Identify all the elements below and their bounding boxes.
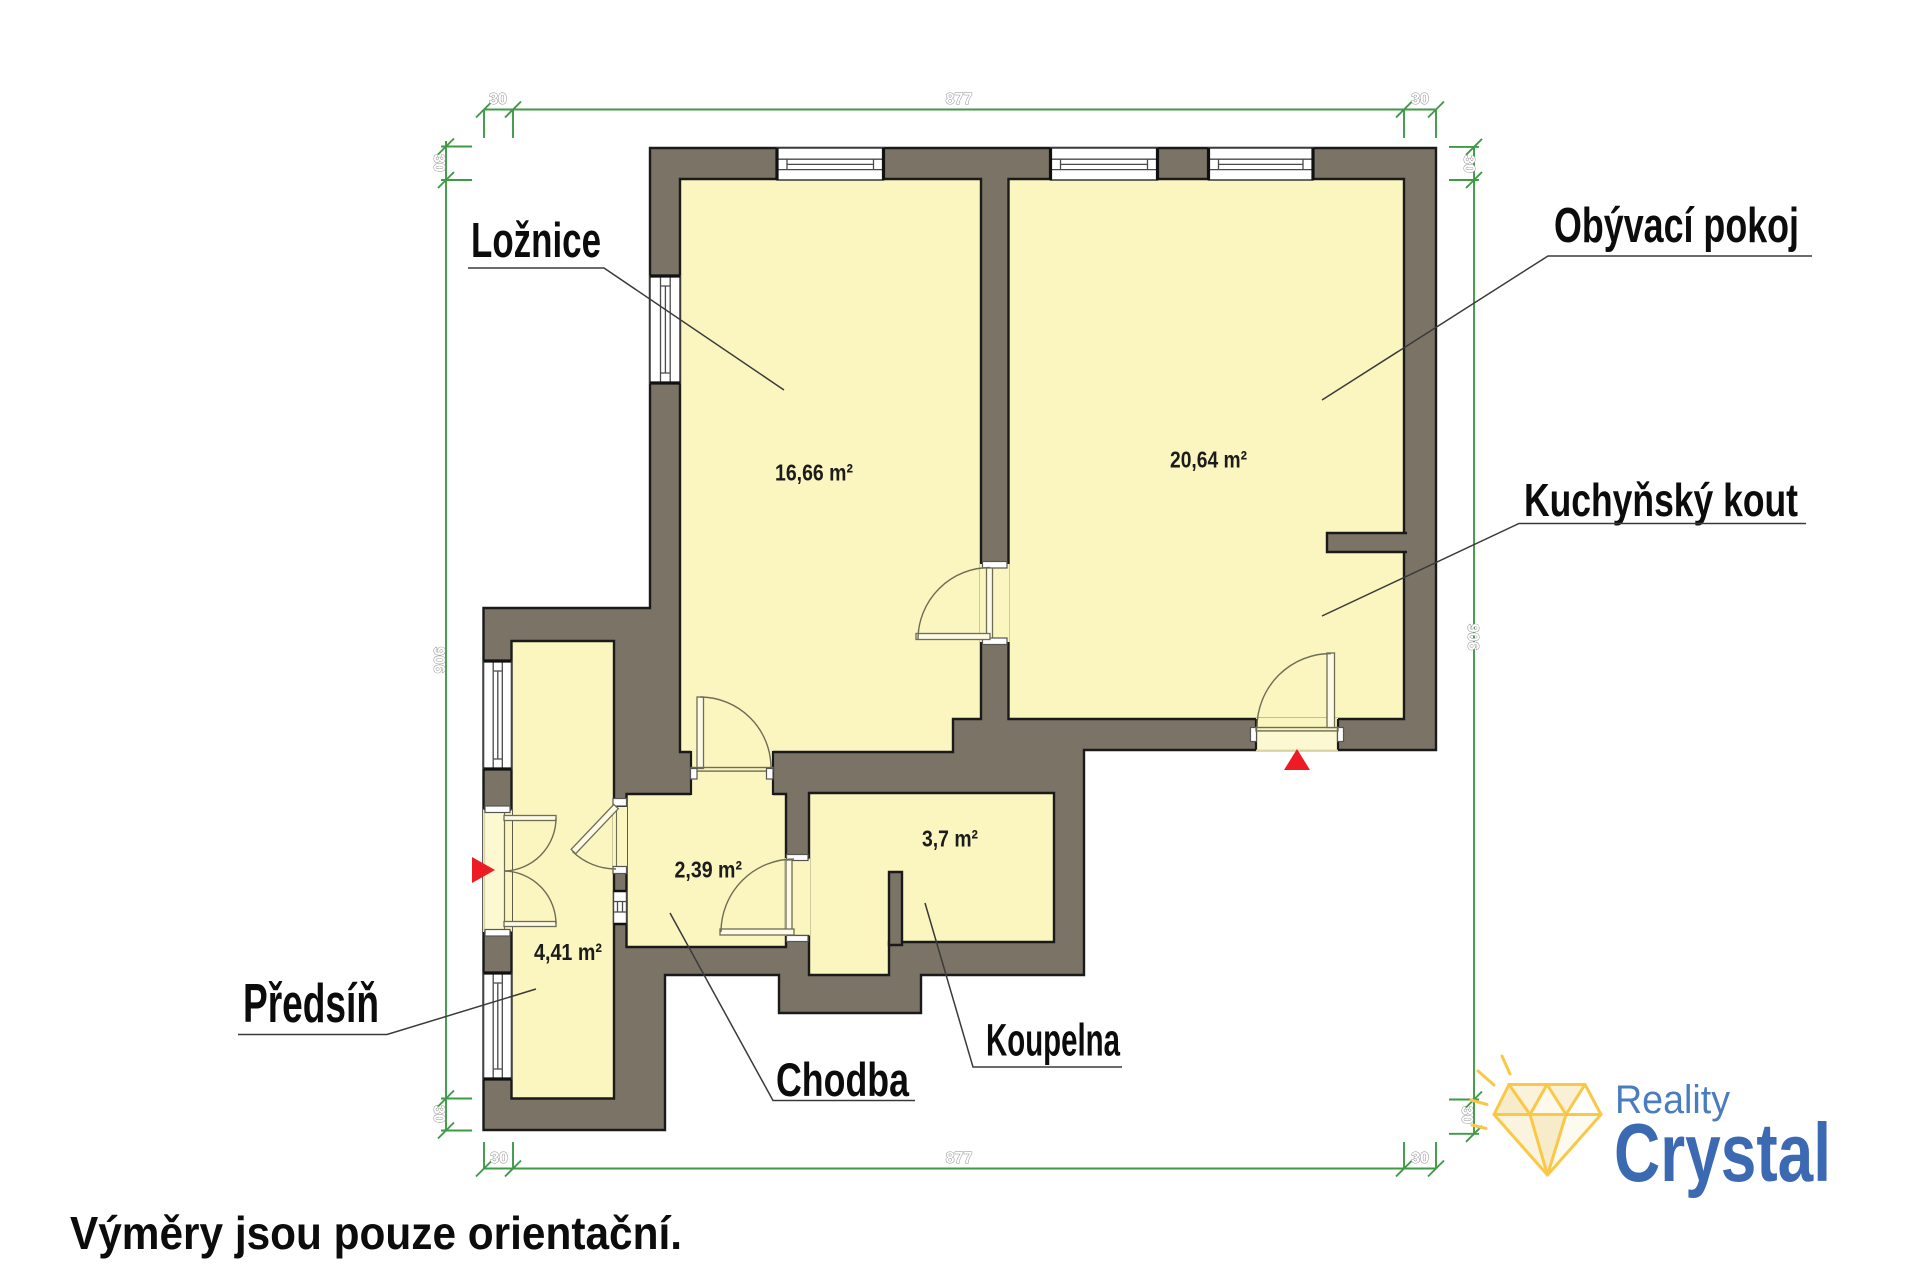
svg-text:30: 30 xyxy=(1411,91,1429,108)
svg-text:30: 30 xyxy=(430,1105,447,1123)
svg-text:30: 30 xyxy=(1411,1150,1429,1167)
svg-text:877: 877 xyxy=(946,91,973,108)
svg-text:16,66 m²: 16,66 m² xyxy=(775,460,853,486)
svg-text:Ložnice: Ložnice xyxy=(471,214,601,268)
svg-text:30: 30 xyxy=(490,1150,508,1167)
svg-text:Kuchyňský kout: Kuchyňský kout xyxy=(1524,474,1798,526)
svg-text:Chodba: Chodba xyxy=(776,1053,910,1106)
svg-text:2,39 m²: 2,39 m² xyxy=(675,857,743,883)
svg-text:30: 30 xyxy=(430,154,447,172)
svg-text:Crystal: Crystal xyxy=(1614,1106,1831,1199)
svg-text:Koupelna: Koupelna xyxy=(986,1015,1121,1066)
svg-text:906: 906 xyxy=(430,647,447,674)
svg-text:30: 30 xyxy=(1460,155,1477,173)
svg-text:30: 30 xyxy=(489,91,507,108)
svg-text:Předsíň: Předsíň xyxy=(243,972,379,1034)
svg-text:906: 906 xyxy=(1464,624,1481,651)
svg-text:3,7 m²: 3,7 m² xyxy=(922,826,978,852)
svg-text:Obývací pokoj: Obývací pokoj xyxy=(1554,199,1799,253)
svg-text:Výměry jsou pouze orientační.: Výměry jsou pouze orientační. xyxy=(70,1207,682,1259)
svg-text:30: 30 xyxy=(1458,1106,1475,1124)
svg-text:20,64 m²: 20,64 m² xyxy=(1170,447,1247,473)
svg-text:4,41 m²: 4,41 m² xyxy=(534,939,602,965)
svg-text:877: 877 xyxy=(946,1150,973,1167)
